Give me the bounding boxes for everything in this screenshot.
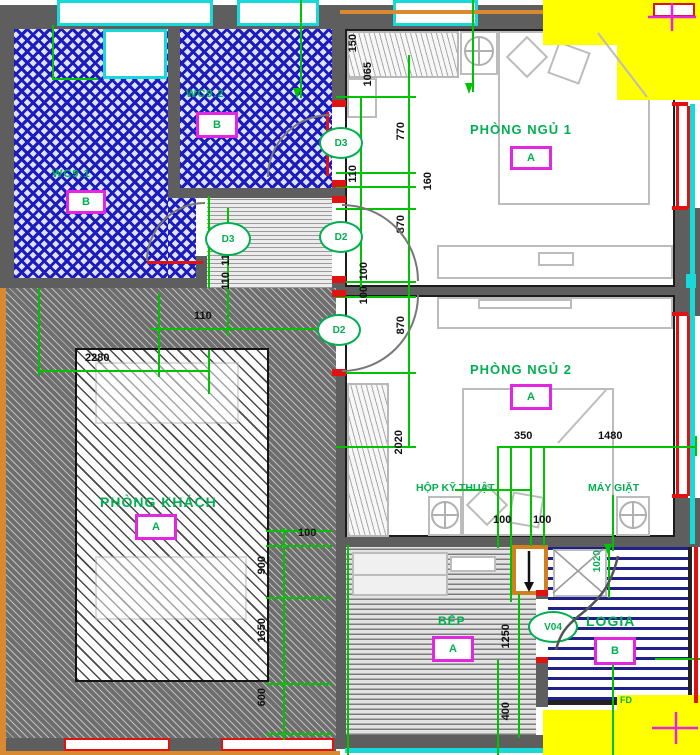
wall-bottom-kitchen <box>332 735 546 749</box>
dim-line <box>283 528 285 740</box>
window-cap-2 <box>672 206 688 210</box>
room-label-wc2: WC9.2 <box>186 88 225 100</box>
door-tag-v04-logia: V04 <box>528 611 578 643</box>
door-tag-d3-wc2: D3 <box>319 127 363 159</box>
leader-line <box>472 0 474 92</box>
dim-110: 110 <box>347 165 359 183</box>
bedroom2-tv <box>478 299 572 309</box>
window-cap-4 <box>672 494 688 498</box>
type-tag-kitchen: A <box>432 636 474 662</box>
door-jamb <box>536 590 548 596</box>
label-floor-drain: FD <box>620 695 632 705</box>
balcony-edge-bottom <box>0 751 340 755</box>
dim-1480: 1480 <box>598 430 622 442</box>
door-jamb <box>332 196 346 203</box>
dim-1250: 1250 <box>500 624 512 648</box>
dim-100: 100 <box>358 262 370 280</box>
wall-logia-right <box>688 547 692 705</box>
dim-1650: 1650 <box>256 618 268 642</box>
dim-line <box>158 293 160 377</box>
wall-center-seg1 <box>332 5 346 103</box>
type-tag-bedroom2: A <box>510 384 552 410</box>
dim-110: 110 <box>220 272 232 290</box>
right-facade-frame <box>690 104 695 544</box>
room-label-bedroom2: PHÒNG NGỦ 2 <box>470 362 572 377</box>
dim-100: 100 <box>298 527 316 539</box>
bedroom1-window <box>676 106 690 208</box>
dim-line <box>408 55 410 448</box>
door-jamb <box>332 100 346 107</box>
window-cap-1 <box>672 102 688 106</box>
living-sofa-2 <box>95 556 247 620</box>
dim-line <box>208 350 210 394</box>
dim-tick <box>336 281 416 283</box>
dim-870: 870 <box>395 215 407 233</box>
room-label-living: PHÒNG KHÁCH <box>100 494 217 510</box>
living-window-2 <box>221 738 334 751</box>
wc1-floor-ext <box>168 198 196 278</box>
window-cap-3 <box>672 312 688 316</box>
dim-770: 770 <box>395 122 407 140</box>
door-tag-d2-bed1: D2 <box>319 221 363 253</box>
door-tag-d2-bed2: D2 <box>317 314 361 346</box>
bedroom2-wardrobe <box>347 383 389 537</box>
door-jamb <box>332 369 346 376</box>
kitchen-counter-1 <box>352 552 448 576</box>
dim-tick <box>336 296 416 298</box>
door-jamb <box>332 180 346 187</box>
type-tag-bedroom1: A <box>510 146 552 170</box>
right-frame-tick <box>686 274 696 288</box>
dim-line <box>497 446 499 548</box>
type-tag-wc2: B <box>196 112 238 138</box>
label-tech-box: HỘP KỸ THUẬT <box>416 482 495 494</box>
dim-tick <box>336 208 416 210</box>
dim-tick <box>266 597 332 599</box>
technical-shaft-box <box>512 545 548 595</box>
bottom-facade-frame <box>345 748 553 753</box>
dim-line <box>530 446 532 546</box>
revision-box <box>653 3 695 17</box>
bedroom2-window <box>676 316 690 496</box>
dim-1020: 1020 <box>592 550 604 572</box>
dim-line <box>612 660 614 755</box>
dim-line <box>518 594 520 738</box>
dim-tick <box>336 186 416 188</box>
floor-plan-canvas: 150 1065 770 110 160 870 100 100 870 202… <box>0 0 700 755</box>
door-leaf-wc1 <box>147 261 203 264</box>
dim-tick <box>336 372 416 374</box>
wall-kitchen-logia-bottom <box>536 661 548 707</box>
dim-150: 150 <box>347 34 359 52</box>
dim-tick <box>266 733 332 735</box>
wall-wc1-wc2 <box>167 29 180 186</box>
top-window-2 <box>237 0 319 26</box>
dim-100: 100 <box>493 514 511 526</box>
ceiling-fan-icon <box>464 36 494 66</box>
bedroom1-tv <box>538 252 574 266</box>
dim-line <box>497 660 499 755</box>
label-washer: MÁY GIẶT <box>588 482 639 494</box>
room-label-bedroom1: PHÒNG NGỦ 1 <box>470 122 572 137</box>
ceiling-fan-icon <box>619 501 647 529</box>
dim-160: 160 <box>422 172 434 190</box>
kitchen-counter-2 <box>352 574 448 596</box>
dim-110: 110 <box>194 310 212 322</box>
dim-line <box>360 96 362 290</box>
dim-100: 100 <box>358 286 370 304</box>
logia-window-line <box>694 547 698 703</box>
type-tag-logia: B <box>594 637 636 665</box>
balcony-edge-left <box>0 288 6 755</box>
top-window-1 <box>57 0 213 26</box>
dim-line-2280 <box>38 370 210 372</box>
type-tag-living: A <box>135 514 177 540</box>
washer-leader-line <box>612 495 614 551</box>
dim-line <box>608 546 610 598</box>
wc1-shower-box <box>103 29 167 79</box>
dim-100: 100 <box>533 514 551 526</box>
room-label-wc1: WC9.1 <box>52 168 91 180</box>
dim-1065: 1065 <box>362 62 374 86</box>
door-jamb <box>536 657 548 663</box>
balcony-edge-top <box>340 10 545 14</box>
kitchen-sink <box>450 556 496 572</box>
dim-line <box>38 288 40 376</box>
dim-400: 400 <box>500 702 512 720</box>
leader-line <box>300 0 302 98</box>
dim-line <box>52 25 54 80</box>
room-label-kitchen: BẾP <box>438 614 466 628</box>
dim-870: 870 <box>395 316 407 334</box>
door-jamb <box>332 276 346 283</box>
dim-600: 600 <box>256 688 268 706</box>
dim-tick <box>266 545 332 547</box>
dim-line <box>347 545 349 755</box>
dim-2280: 2280 <box>85 352 109 364</box>
dim-900: 900 <box>256 556 268 574</box>
dim-tick <box>266 683 332 685</box>
dim-line <box>543 446 545 546</box>
dim-2020: 2020 <box>393 430 405 454</box>
wc2-floor <box>180 29 332 188</box>
type-tag-wc1: B <box>66 190 106 214</box>
living-window-1 <box>64 738 170 751</box>
highlight-top-1 <box>543 0 620 45</box>
dim-tick <box>336 96 416 98</box>
ceiling-fan-icon <box>431 501 459 529</box>
room-label-logia: LOGIA <box>586 613 635 629</box>
dim-350: 350 <box>514 430 532 442</box>
dim-line <box>52 78 98 80</box>
dim-line <box>497 446 697 448</box>
door-jamb <box>332 290 346 297</box>
wall-left-wc <box>0 5 14 290</box>
door-tag-d3-corridor: D3 <box>205 222 251 256</box>
